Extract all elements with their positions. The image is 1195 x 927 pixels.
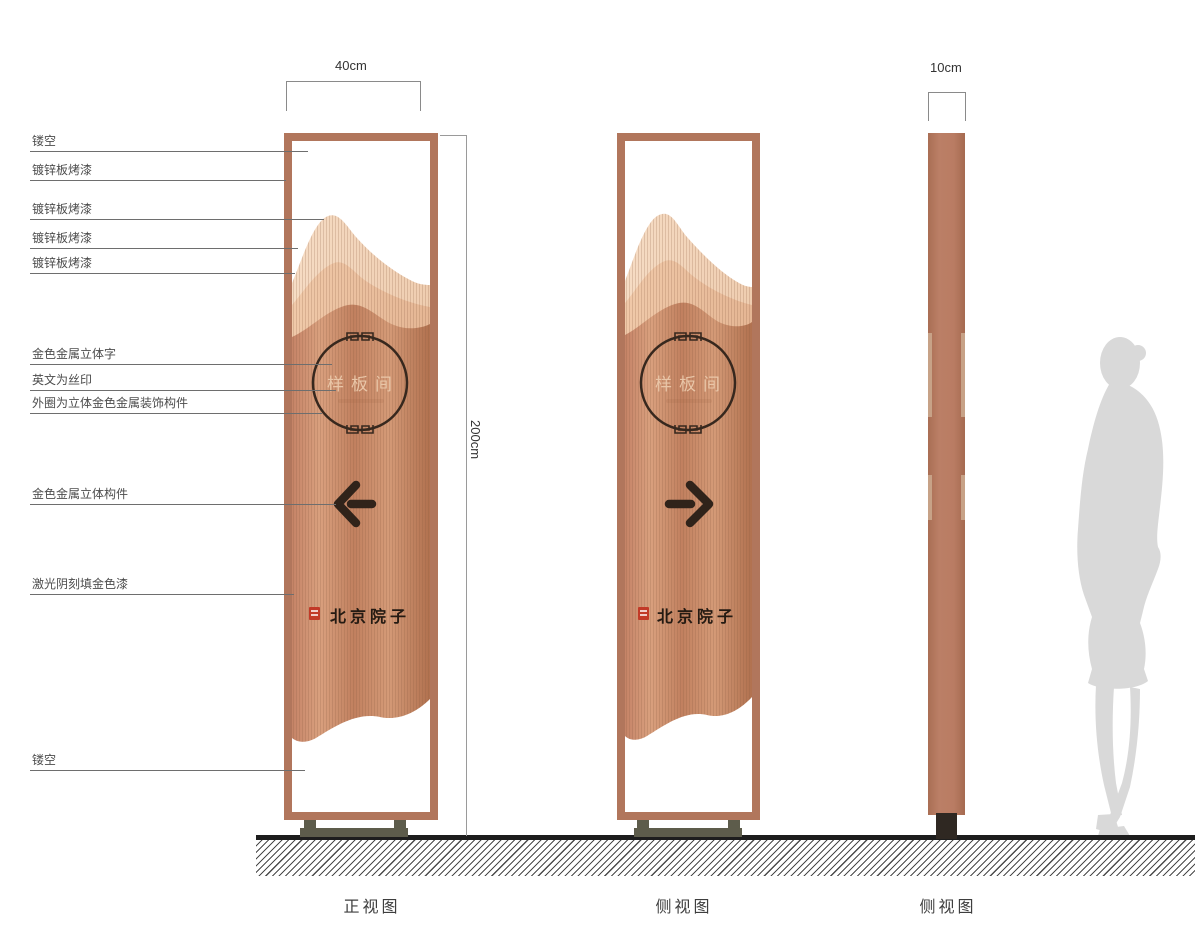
callout-hollow-bottom: 镂空: [30, 753, 305, 771]
callout-hollow-top: 镂空: [30, 134, 308, 152]
brand-calligraphy: 北京院子: [657, 607, 737, 626]
dim-side-width-label: 10cm: [930, 60, 962, 75]
profile-foot: [936, 813, 957, 839]
seal-stamp: [638, 607, 649, 620]
view-label-side-1: 侧视图: [655, 893, 712, 917]
brushed-texture: [625, 214, 752, 740]
dim-height-tick: [440, 135, 466, 136]
callout-galvanized-3: 镀锌板烤漆: [30, 231, 298, 249]
profile-protrusion-arrow-left: [928, 475, 932, 520]
pillar-front-view: 样板间 北京院子: [284, 133, 438, 820]
callout-galvanized-2: 镀锌板烤漆: [30, 202, 324, 220]
callout-label: 英文为丝印: [32, 373, 92, 387]
silhouette-hair: [1130, 345, 1146, 361]
callout-label: 镂空: [32, 134, 56, 148]
brand-calligraphy: 北京院子: [330, 607, 410, 626]
callout-label: 镀锌板烤漆: [32, 163, 92, 177]
drawing-canvas: 镂空 镀锌板烤漆 镀锌板烤漆 镀锌板烤漆 镀锌板烤漆 金色金属立体字 英文为丝印…: [0, 0, 1195, 927]
pillar1-base-bar: [300, 828, 408, 837]
callout-label: 金色金属立体构件: [32, 487, 128, 501]
callout-galvanized-4: 镀锌板烤漆: [30, 256, 295, 274]
callout-label: 激光阴刻填金色漆: [32, 577, 128, 591]
brushed-texture: [292, 215, 430, 742]
dim-height-line: [466, 135, 467, 836]
silhouette-body: [1077, 383, 1163, 689]
silkscreen-subtext: [338, 399, 384, 403]
silhouette-head: [1100, 337, 1140, 389]
callout-galvanized-1: 镀锌板烤漆: [30, 163, 286, 181]
callout-label: 镀锌板烤漆: [32, 231, 92, 245]
dim-height-label: 200cm: [468, 420, 483, 459]
callout-silkscreen: 英文为丝印: [30, 373, 336, 391]
callout-gold-letters: 金色金属立体字: [30, 347, 332, 365]
callout-label: 外圈为立体金色金属装饰构件: [32, 396, 188, 410]
view-label-front: 正视图: [343, 893, 400, 917]
callout-label: 镀锌板烤漆: [32, 256, 92, 270]
circle-room-label: 样板间: [327, 375, 399, 394]
callout-gold-component: 金色金属立体构件: [30, 487, 336, 505]
pillar-profile-view: [928, 133, 965, 840]
callout-laser-engrave: 激光阴刻填金色漆: [30, 577, 294, 595]
silkscreen-subtext: [666, 399, 712, 403]
profile-protrusion-ring-right: [961, 333, 965, 417]
profile-protrusion-ring-left: [928, 333, 932, 417]
callout-label: 镂空: [32, 753, 56, 767]
profile-protrusion-arrow-right: [961, 475, 965, 520]
callout-gold-ring: 外圈为立体金色金属装饰构件: [30, 396, 322, 414]
dim-side-width-bracket: [928, 92, 966, 121]
dim-front-width-label: 40cm: [335, 58, 367, 73]
view-label-side-2: 侧视图: [919, 893, 976, 917]
human-scale-silhouette: [1040, 333, 1188, 840]
ground-hatch: [256, 840, 1195, 876]
profile-column: [928, 133, 965, 815]
callout-label: 金色金属立体字: [32, 347, 116, 361]
pillar2-base-bar: [634, 828, 742, 837]
seal-stamp: [309, 607, 320, 620]
circle-room-label: 样板间: [655, 375, 727, 394]
pillar-side-view: 样板间 北京院子: [617, 133, 760, 820]
callout-label: 镀锌板烤漆: [32, 202, 92, 216]
dim-front-width-bracket: [286, 81, 421, 111]
